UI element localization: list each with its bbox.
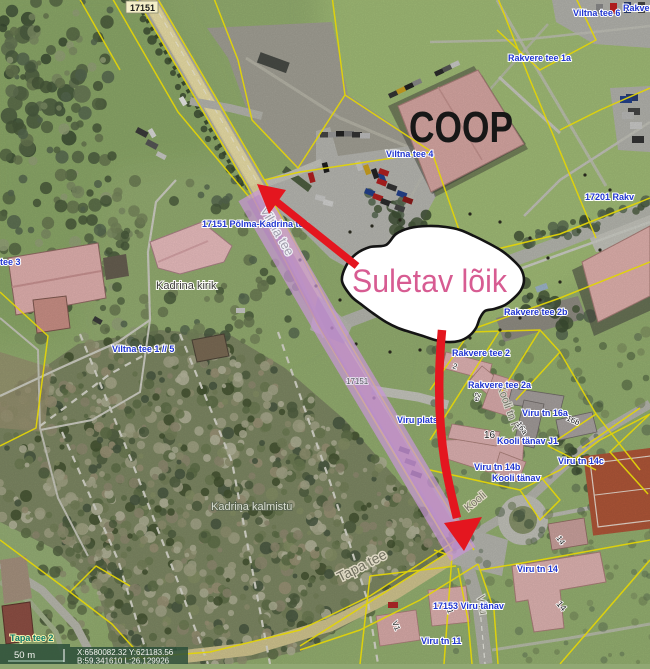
svg-text:Rakvere tee 2a: Rakvere tee 2a xyxy=(468,380,532,390)
svg-text:Viru plats: Viru plats xyxy=(397,415,438,425)
svg-text:Tapa tee 2: Tapa tee 2 xyxy=(10,633,53,643)
svg-text:17151: 17151 xyxy=(346,377,369,386)
svg-text:50 m: 50 m xyxy=(14,650,35,661)
svg-text:Viru tn 14b: Viru tn 14b xyxy=(474,462,521,472)
svg-text:Rakvere tee 1a: Rakvere tee 1a xyxy=(508,53,572,63)
svg-text:Viltna tee 1 // 5: Viltna tee 1 // 5 xyxy=(112,344,174,354)
svg-text:Kooli tänav: Kooli tänav xyxy=(492,473,541,483)
svg-text:Viru tn 16a: Viru tn 16a xyxy=(522,408,569,418)
svg-text:Rakvere tee 2: Rakvere tee 2 xyxy=(452,348,510,358)
svg-text:Rakvere: Rakvere xyxy=(623,3,650,13)
svg-text:tee 3: tee 3 xyxy=(0,257,21,267)
svg-text:17153 Viru tänav: 17153 Viru tänav xyxy=(433,601,504,611)
svg-text:Kadrina kirik: Kadrina kirik xyxy=(156,280,217,292)
svg-text:Kooli tänav J1: Kooli tänav J1 xyxy=(497,436,558,446)
svg-text:17151 Põlma-Kadrina tee: 17151 Põlma-Kadrina tee xyxy=(202,219,309,229)
svg-text:Rakvere tee 2b: Rakvere tee 2b xyxy=(504,307,568,317)
svg-text:Viru tn 11: Viru tn 11 xyxy=(421,636,461,646)
svg-text:17151: 17151 xyxy=(130,3,155,13)
svg-text:B:59.341610 L:26.129926: B:59.341610 L:26.129926 xyxy=(77,657,170,665)
svg-text:17201 Rakv: 17201 Rakv xyxy=(585,192,634,202)
svg-text:Suletav lõik: Suletav lõik xyxy=(352,263,508,299)
svg-text:Viru tn 14: Viru tn 14 xyxy=(517,564,558,574)
svg-text:Viltna tee 6: Viltna tee 6 xyxy=(573,8,620,18)
svg-text:Kadrina kalmistu: Kadrina kalmistu xyxy=(211,501,292,513)
svg-text:16: 16 xyxy=(484,430,496,441)
svg-text:Viltna tee 4: Viltna tee 4 xyxy=(386,149,433,159)
svg-text:Viru tn 14c: Viru tn 14c xyxy=(558,456,604,466)
